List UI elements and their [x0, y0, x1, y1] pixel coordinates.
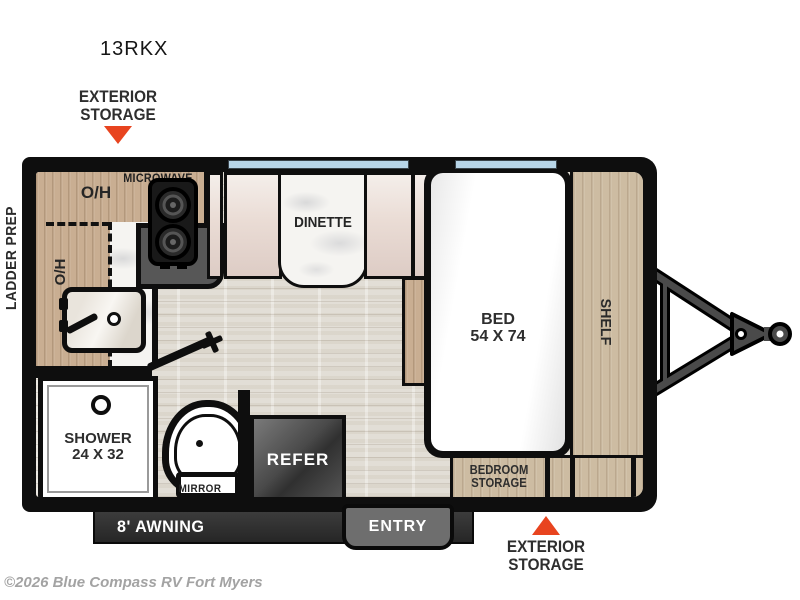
exterior-storage-arrow-bottom-icon: [532, 516, 560, 535]
awning-label: 8' AWNING: [117, 518, 204, 536]
shower: SHOWER 24 X 32: [38, 376, 158, 497]
bed-label: BED 54 X 74: [424, 312, 572, 345]
bed: BED 54 X 74: [424, 172, 572, 458]
exterior-storage-callout-bottom: EXTERIOR STORAGE: [474, 538, 618, 573]
exterior-storage-top-line1: EXTERIOR: [53, 88, 183, 106]
sink-drain-icon: [107, 312, 121, 326]
door-handle-icon: [200, 330, 224, 354]
dinette-table: DINETTE: [278, 172, 368, 288]
trailer-hitch: [648, 256, 796, 406]
faucet-spout-icon: [65, 312, 98, 334]
shower-label-line1: SHOWER: [43, 431, 153, 447]
copyright-text: ©2026 Blue Compass RV Fort Myers: [4, 574, 263, 591]
entry-label: ENTRY: [369, 519, 428, 536]
storage-divider: [545, 458, 550, 497]
storage-divider: [570, 458, 575, 497]
shower-drain-icon: [91, 395, 111, 415]
shower-label: SHOWER 24 X 32: [43, 431, 153, 462]
mirror-label: MIRROR: [164, 484, 236, 495]
ladder-prep-label: LADDER PREP: [4, 194, 22, 323]
dinette-bench-right: [364, 172, 414, 279]
dinette-bench-left: [224, 172, 282, 279]
floorplan-canvas: 13RKX EXTERIOR STORAGE LADDER PREP: [0, 0, 800, 600]
model-title: 13RKX: [100, 38, 168, 61]
bedroom-storage: BEDROOM STORAGE: [450, 455, 643, 497]
bed-label-line2: 54 X 74: [424, 329, 572, 346]
toilet-flush-icon: [196, 440, 203, 447]
overhead-dashed-line-h: [46, 222, 110, 226]
storage-divider: [631, 458, 636, 497]
faucet-handle-icon: [59, 298, 68, 310]
exterior-storage-top-line2: STORAGE: [53, 106, 183, 124]
entry-door: ENTRY: [342, 504, 454, 550]
window-dinette: [228, 160, 409, 169]
trailer-interior: O/H MICROWAVE O/H: [36, 172, 643, 497]
refer-label: REFER: [267, 451, 330, 469]
bedroom-storage-label: BEDROOM STORAGE: [453, 464, 545, 490]
bed-label-line1: BED: [424, 312, 572, 329]
bedroom-storage-line2: STORAGE: [458, 477, 541, 490]
galley-wall: [238, 390, 250, 497]
exterior-storage-callout-top: EXTERIOR STORAGE: [46, 88, 190, 144]
trailer-body: O/H MICROWAVE O/H: [22, 157, 657, 512]
exterior-storage-arrow-top-icon: [104, 126, 132, 144]
dinette-end-panel: [207, 172, 223, 279]
kitchen-sink: [62, 287, 146, 353]
exterior-storage-bottom-line1: EXTERIOR: [481, 538, 611, 556]
cooktop-icon: [148, 178, 198, 270]
exterior-storage-bottom-line2: STORAGE: [481, 556, 611, 574]
refrigerator: REFER: [250, 415, 346, 497]
dinette-label: DINETTE: [285, 215, 361, 231]
window-bed: [455, 160, 557, 169]
oh-upper-label: O/H: [66, 184, 126, 202]
shower-label-line2: 24 X 32: [43, 447, 153, 463]
shelf-label: SHELF: [595, 279, 613, 365]
